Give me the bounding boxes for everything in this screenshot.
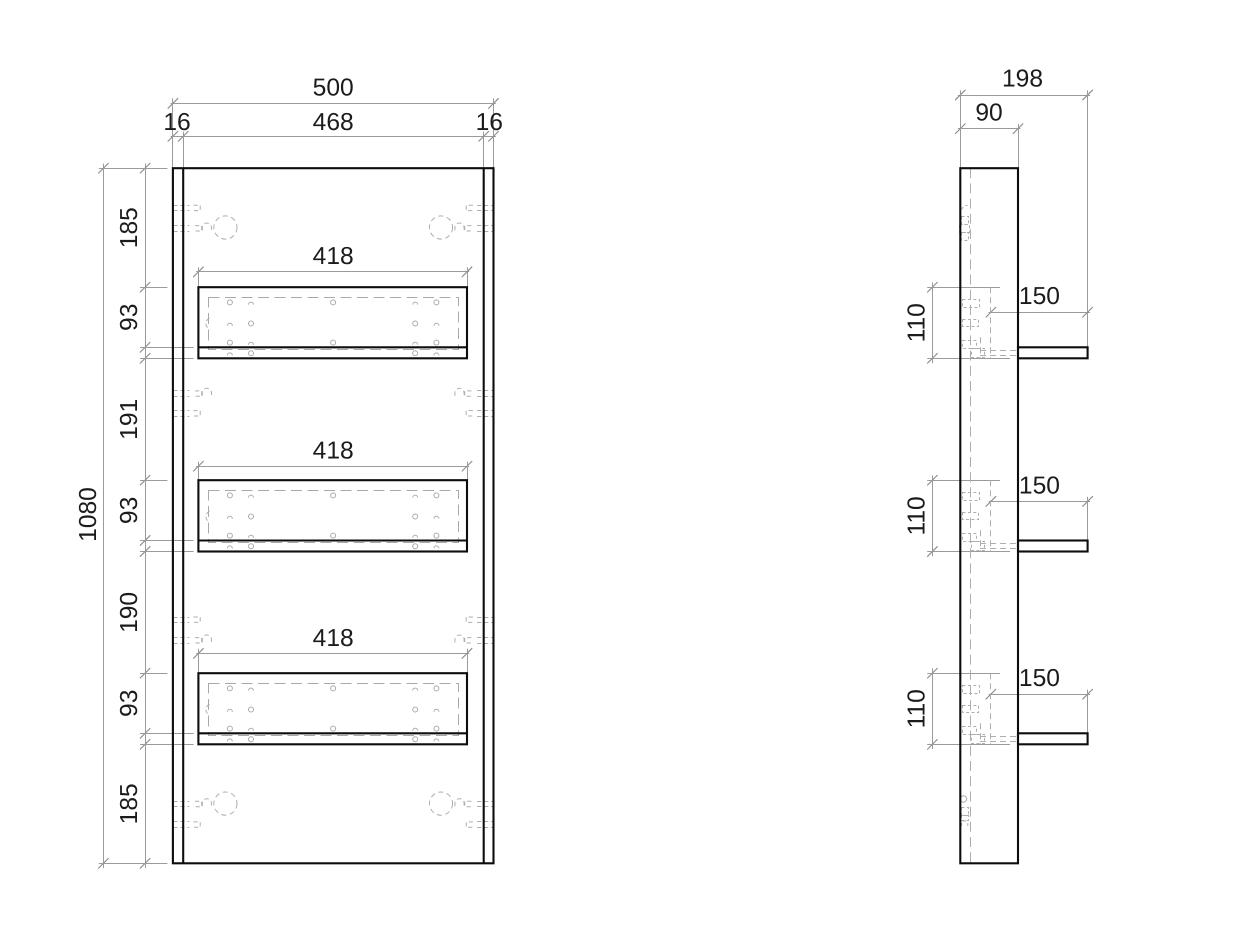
svg-text:16: 16 bbox=[163, 109, 190, 136]
svg-text:110: 110 bbox=[903, 496, 930, 535]
svg-text:90: 90 bbox=[975, 100, 1002, 127]
svg-text:185: 185 bbox=[116, 207, 143, 248]
svg-text:418: 418 bbox=[313, 625, 354, 652]
svg-text:150: 150 bbox=[1019, 283, 1060, 310]
svg-text:16: 16 bbox=[476, 109, 503, 136]
svg-text:150: 150 bbox=[1019, 472, 1060, 499]
svg-text:110: 110 bbox=[903, 303, 930, 342]
svg-text:418: 418 bbox=[313, 437, 354, 464]
svg-text:93: 93 bbox=[116, 690, 143, 717]
svg-text:500: 500 bbox=[313, 75, 354, 102]
svg-text:110: 110 bbox=[903, 689, 930, 728]
svg-text:418: 418 bbox=[313, 243, 354, 270]
svg-text:1080: 1080 bbox=[75, 487, 102, 542]
svg-text:93: 93 bbox=[116, 304, 143, 331]
svg-text:150: 150 bbox=[1019, 665, 1060, 692]
svg-text:468: 468 bbox=[313, 109, 354, 136]
svg-text:198: 198 bbox=[1002, 66, 1043, 93]
svg-text:93: 93 bbox=[116, 497, 143, 524]
svg-text:191: 191 bbox=[116, 399, 143, 440]
svg-text:190: 190 bbox=[116, 592, 143, 633]
svg-text:185: 185 bbox=[116, 783, 143, 824]
